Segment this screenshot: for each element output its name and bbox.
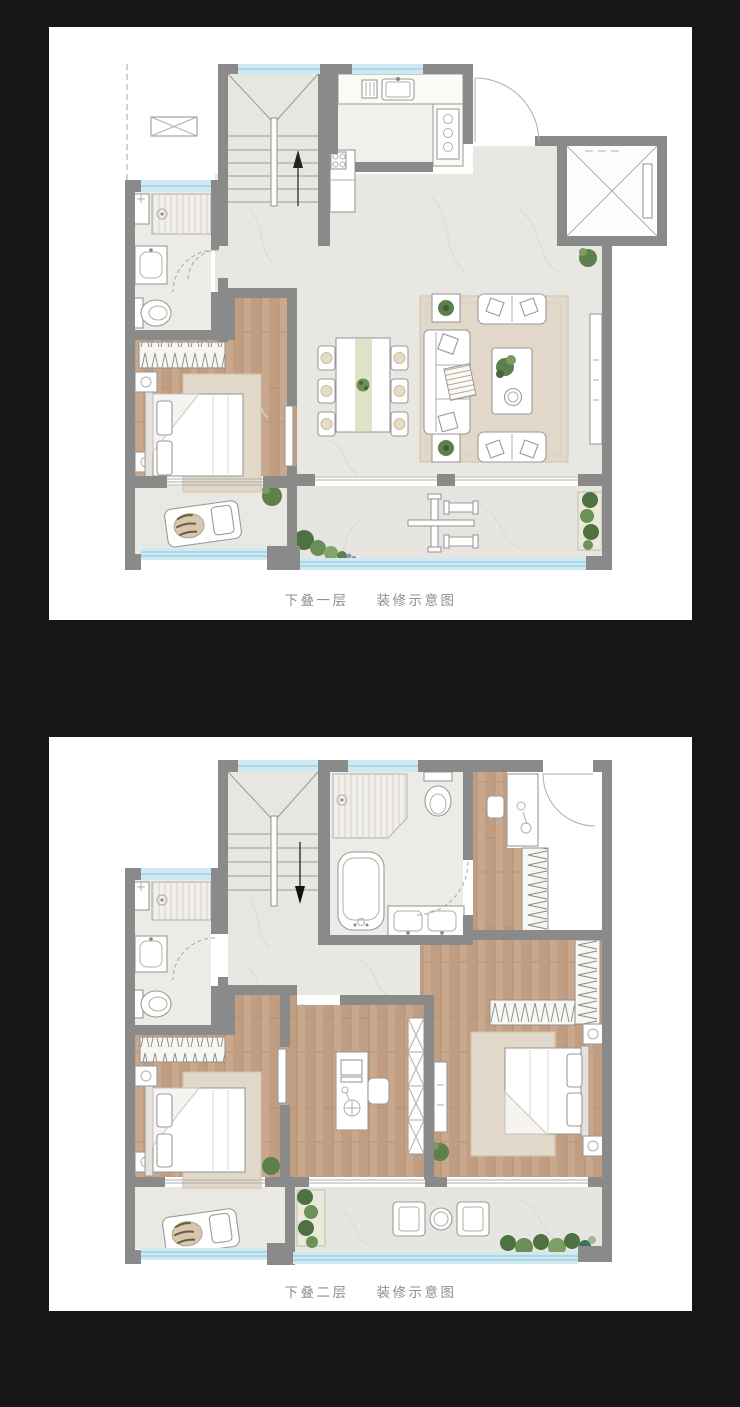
floor-1-caption: 下叠一层装修示意图 bbox=[49, 589, 692, 609]
elevator-1 bbox=[567, 146, 657, 236]
floor-2-label: 下叠二层 bbox=[285, 1285, 349, 1301]
floor-plan-1-image bbox=[49, 27, 692, 620]
pillow bbox=[157, 1094, 172, 1127]
entry-door-arc bbox=[475, 78, 539, 142]
floor-2-caption: 下叠二层装修示意图 bbox=[49, 1281, 692, 1301]
tv-console bbox=[590, 314, 602, 444]
desk-chair bbox=[368, 1078, 389, 1104]
plant bbox=[262, 1157, 280, 1175]
shower-area bbox=[333, 774, 407, 838]
android-nav-bar bbox=[0, 1311, 740, 1407]
floor-1-boundary bbox=[127, 64, 197, 180]
nightstand bbox=[135, 1066, 157, 1086]
toilet bbox=[425, 786, 451, 816]
pillow bbox=[157, 401, 172, 435]
floor-1-type-label: 装修示意图 bbox=[377, 593, 457, 609]
hall-chair bbox=[487, 796, 504, 818]
floor-plan-2-image bbox=[49, 737, 692, 1311]
pillow bbox=[567, 1093, 582, 1126]
wardrobe bbox=[139, 342, 225, 368]
floor-2-type-label: 装修示意图 bbox=[377, 1285, 457, 1301]
tv-console bbox=[434, 1062, 447, 1132]
round-table bbox=[430, 1208, 452, 1230]
floor-1-label: 下叠一层 bbox=[285, 593, 349, 609]
hall-closet bbox=[522, 848, 548, 932]
nightstand bbox=[583, 1136, 603, 1156]
floor-plan-card-1[interactable]: 下叠一层装修示意图 bbox=[49, 27, 692, 620]
entry-door-arc bbox=[543, 774, 595, 826]
dining-set bbox=[318, 338, 408, 436]
wardrobe bbox=[490, 1000, 575, 1025]
nightstand bbox=[583, 1024, 603, 1044]
door-leaf bbox=[285, 406, 293, 466]
laptop bbox=[341, 1060, 362, 1075]
shower-area bbox=[152, 882, 211, 920]
nightstand bbox=[135, 372, 157, 392]
wardrobe bbox=[140, 1037, 225, 1062]
wardrobe bbox=[575, 940, 600, 1024]
phone-screen: 下叠一层装修示意图 bbox=[0, 0, 740, 1407]
pillow bbox=[567, 1054, 582, 1087]
floor-plan-card-2[interactable]: 下叠二层装修示意图 bbox=[49, 737, 692, 1311]
pillow bbox=[157, 441, 172, 475]
pillow bbox=[157, 1134, 172, 1167]
door-leaf bbox=[278, 1049, 286, 1103]
